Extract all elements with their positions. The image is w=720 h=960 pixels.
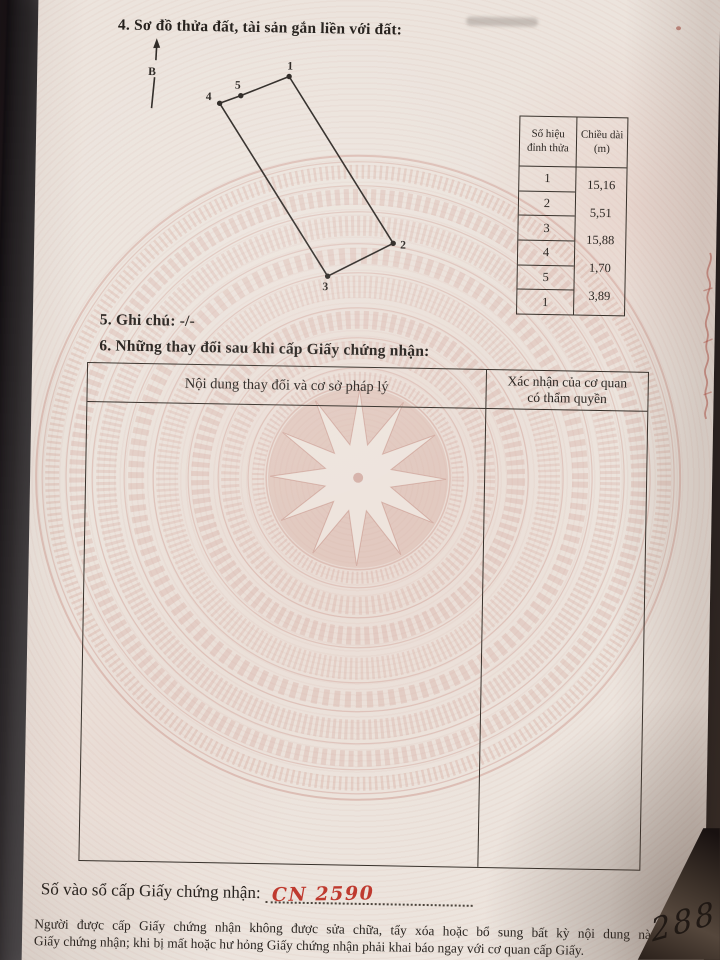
changes-col1-empty-cell xyxy=(79,402,486,867)
vertex-dot xyxy=(325,273,330,278)
footer-note: Người được cấp Giấy chứng nhận không đượ… xyxy=(34,915,694,960)
length-header: Chiều dài (m) xyxy=(577,118,628,168)
changes-table-body xyxy=(79,402,647,870)
section5-heading: 5. Ghi chú: -/- xyxy=(100,311,195,331)
dotted-leader: CN 2590 xyxy=(265,880,473,907)
north-label: B xyxy=(148,66,156,78)
registry-row: Số vào sổ cấp Giấy chứng nhận: CN 2590 xyxy=(41,876,473,907)
north-arrow-icon: B xyxy=(148,38,161,108)
vertex-table-body: 1 2 3 4 5 1 15,16 5,51 15,88 1,70 3,89 xyxy=(517,167,627,316)
section4-heading: 4. Sơ đồ thửa đất, tài sản gắn liền với … xyxy=(118,17,402,40)
vertex-label: 4 xyxy=(206,91,212,103)
vertex-label: 3 xyxy=(322,281,328,293)
length-column: 15,16 5,51 15,88 1,70 3,89 xyxy=(574,168,627,316)
section6-heading: 6. Những thay đổi sau khi cấp Giấy chứng… xyxy=(99,337,429,361)
vertex-number-cell: 5 xyxy=(517,265,573,291)
certificate-page: 4. Sơ đồ thửa đất, tài sản gắn liền với … xyxy=(21,0,720,960)
vertex-number-cell: 3 xyxy=(518,216,574,242)
vertex-dot xyxy=(238,93,243,98)
vertex-dot xyxy=(286,74,291,79)
changes-col2-header: Xác nhận của cơ quan có thẩm quyền xyxy=(486,370,648,411)
changes-col2-empty-cell xyxy=(478,409,647,870)
vertex-table: Số hiệu đỉnh thửa Chiều dài (m) 1 2 3 4 … xyxy=(516,116,628,317)
vertex-table-header: Số hiệu đỉnh thửa Chiều dài (m) xyxy=(520,117,628,169)
length-value: 15,88 xyxy=(575,234,625,247)
length-value: 15,16 xyxy=(576,179,626,192)
scan-smudge xyxy=(466,17,538,27)
vertex-number-column: 1 2 3 4 5 1 xyxy=(517,167,577,315)
vertex-label: 5 xyxy=(235,80,241,92)
vertex-number-header: Số hiệu đỉnh thửa xyxy=(520,117,578,167)
changes-col1-header: Nội dung thay đổi và cơ sở pháp lý xyxy=(87,363,487,408)
vertex-number-cell: 2 xyxy=(519,191,575,217)
registry-number-handwriting: CN 2590 xyxy=(271,882,374,906)
vertex-number-cell: 1 xyxy=(519,167,575,193)
length-value: 3,89 xyxy=(574,289,624,302)
vertex-number-cell: 1 xyxy=(517,290,573,315)
length-value: 5,51 xyxy=(576,206,626,219)
vertex-dot xyxy=(390,241,395,246)
ink-speck xyxy=(676,26,681,30)
vertex-label: 2 xyxy=(400,239,406,251)
length-value: 1,70 xyxy=(575,261,625,274)
vertex-number-cell: 4 xyxy=(518,241,574,267)
parcel-polygon: 1 2 3 4 5 xyxy=(202,59,409,295)
photo-background: 4. Sơ đồ thửa đất, tài sản gắn liền với … xyxy=(0,0,720,960)
vertex-label: 1 xyxy=(287,60,293,72)
vertex-dot xyxy=(217,101,222,106)
registry-label: Số vào sổ cấp Giấy chứng nhận: xyxy=(41,879,261,903)
changes-table: Nội dung thay đổi và cơ sở pháp lý Xác n… xyxy=(78,362,649,871)
